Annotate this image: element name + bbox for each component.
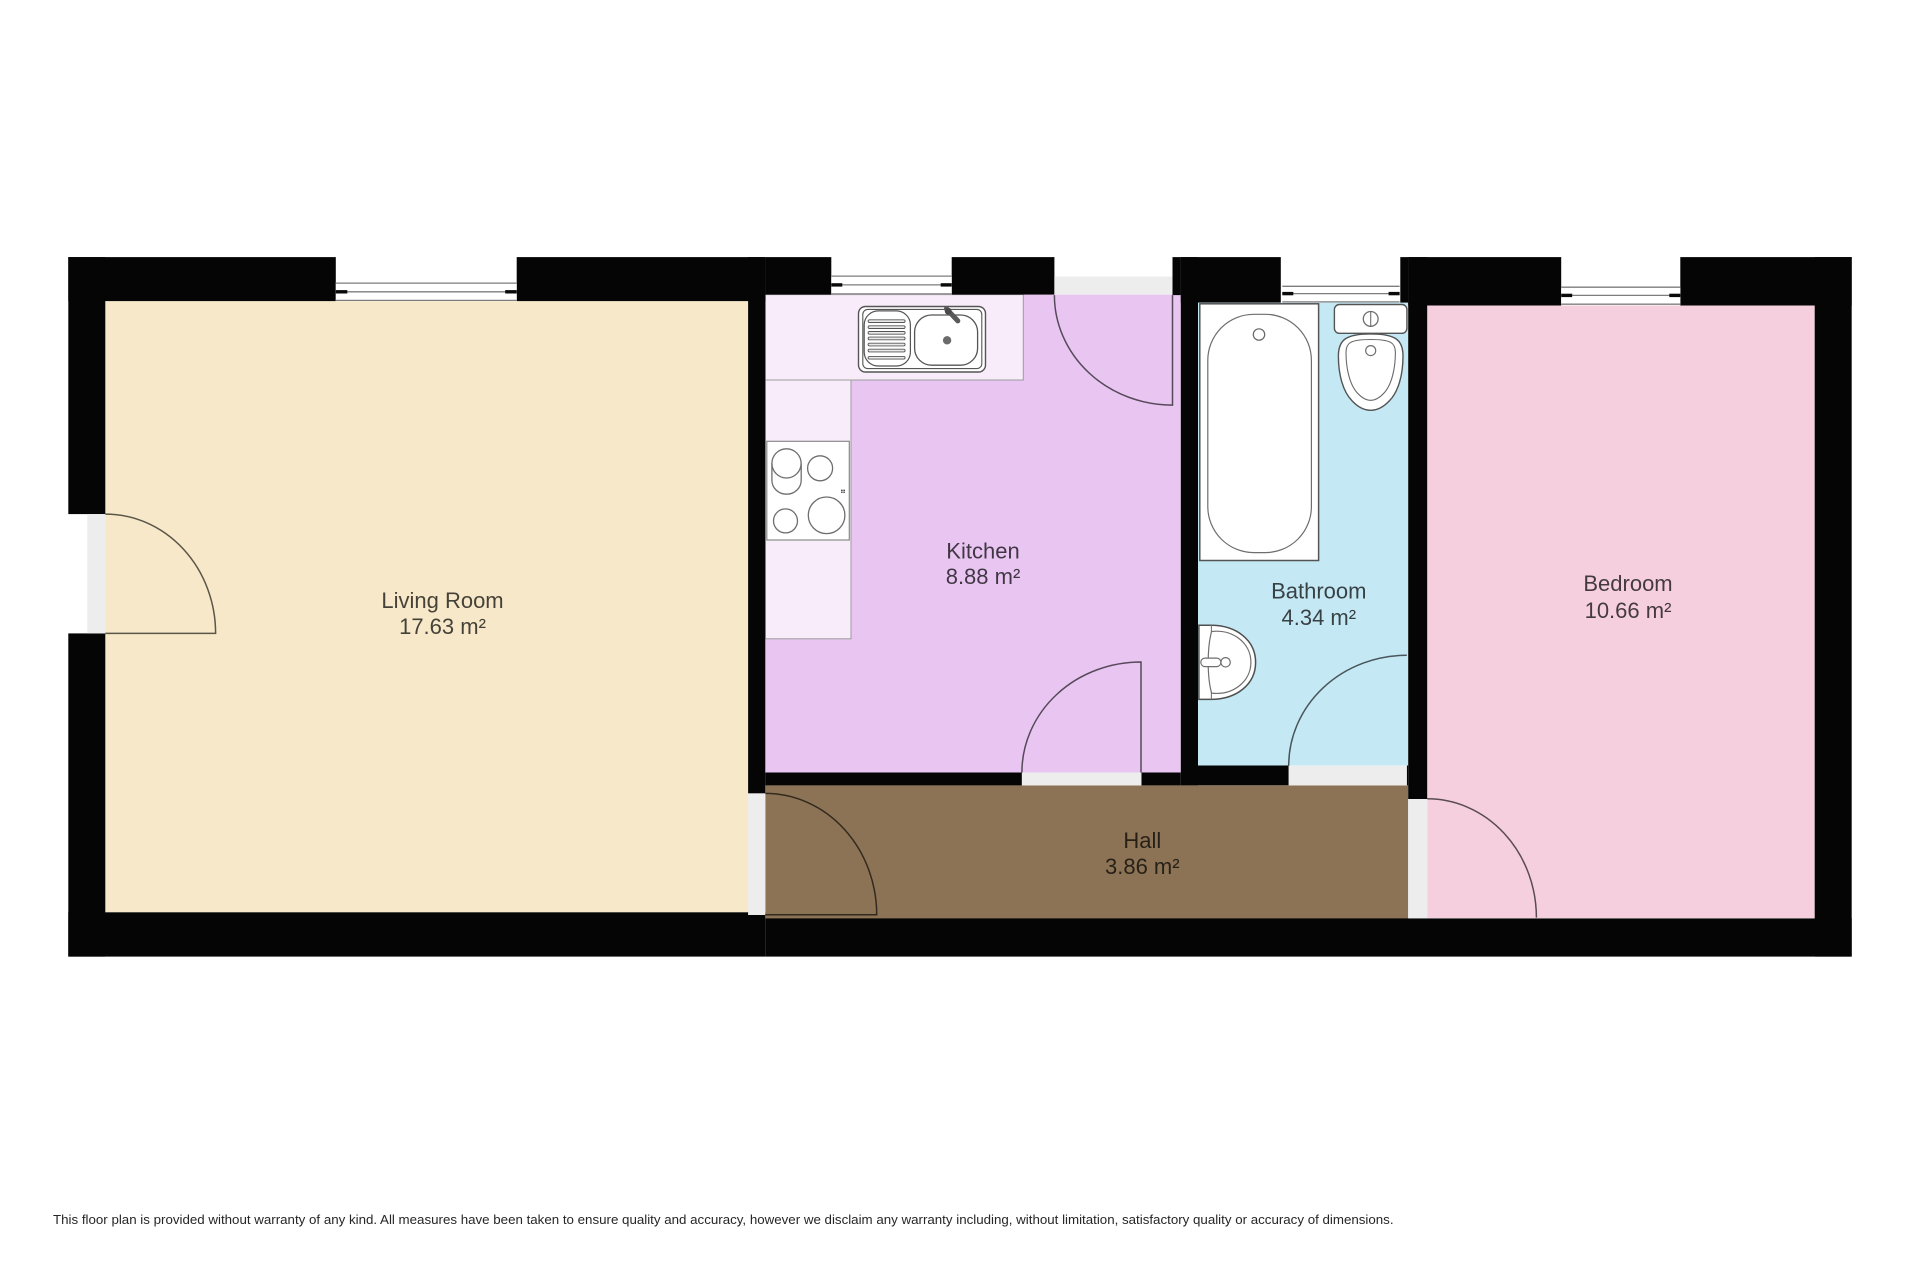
- svg-text:Hall: Hall: [1123, 828, 1161, 853]
- svg-text:10.66 m²: 10.66 m²: [1585, 598, 1672, 623]
- svg-text:This floor plan is provided wi: This floor plan is provided without warr…: [53, 1212, 1394, 1227]
- svg-text:4.34 m²: 4.34 m²: [1282, 605, 1357, 630]
- svg-text:Bathroom: Bathroom: [1271, 579, 1366, 604]
- svg-text:17.63 m²: 17.63 m²: [399, 614, 486, 639]
- svg-text:3.86 m²: 3.86 m²: [1105, 854, 1180, 879]
- svg-text:Bedroom: Bedroom: [1583, 571, 1672, 596]
- svg-text:Kitchen: Kitchen: [946, 538, 1019, 563]
- svg-text:Living Room: Living Room: [381, 588, 503, 613]
- svg-text:8.88 m²: 8.88 m²: [946, 564, 1021, 589]
